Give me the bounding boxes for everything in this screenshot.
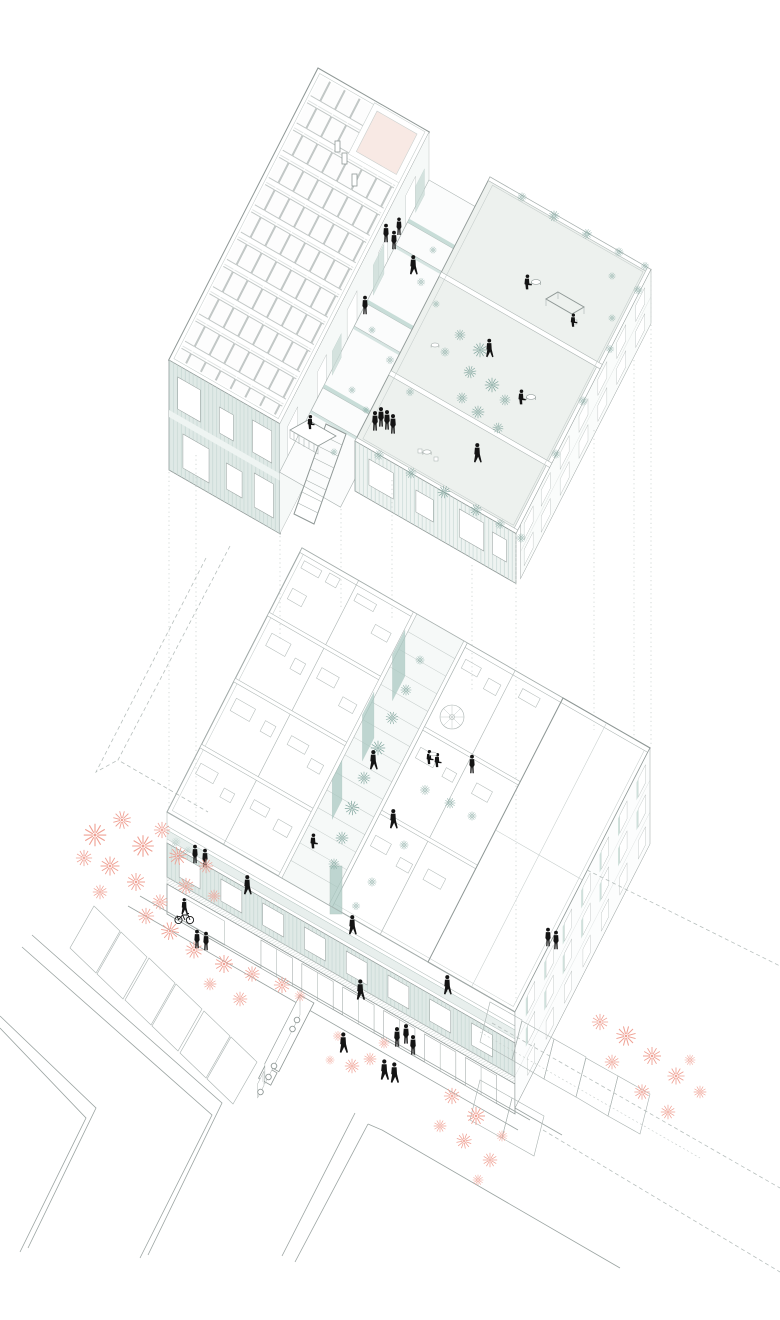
- curb: [0, 1028, 86, 1252]
- lower-level: [96, 546, 650, 1114]
- round-table: [429, 752, 436, 756]
- curb: [282, 1113, 355, 1256]
- round-table: [431, 343, 439, 348]
- person: [391, 1062, 399, 1083]
- axonometric-drawing: [0, 0, 780, 1320]
- neighbour-outline: [96, 546, 230, 812]
- round-table: [526, 395, 535, 400]
- chair: [418, 449, 422, 453]
- curb: [368, 1124, 620, 1268]
- curb: [22, 947, 212, 1258]
- chair: [434, 457, 438, 461]
- right-facade: [515, 748, 650, 1108]
- drawing-canvas: [0, 0, 780, 1320]
- person: [340, 1032, 348, 1053]
- ground-floor: [167, 884, 515, 1114]
- curb: [32, 935, 222, 1255]
- round-table: [423, 450, 431, 455]
- delivery-truck: [258, 995, 314, 1098]
- person: [349, 915, 357, 934]
- round-table: [531, 280, 540, 285]
- curb: [295, 1124, 368, 1262]
- rear-wall: [300, 548, 650, 752]
- upper-level: [169, 68, 651, 584]
- curb: [0, 1016, 96, 1248]
- curb: [515, 1108, 562, 1135]
- person: [381, 1059, 389, 1080]
- spiral-stair: [440, 705, 464, 729]
